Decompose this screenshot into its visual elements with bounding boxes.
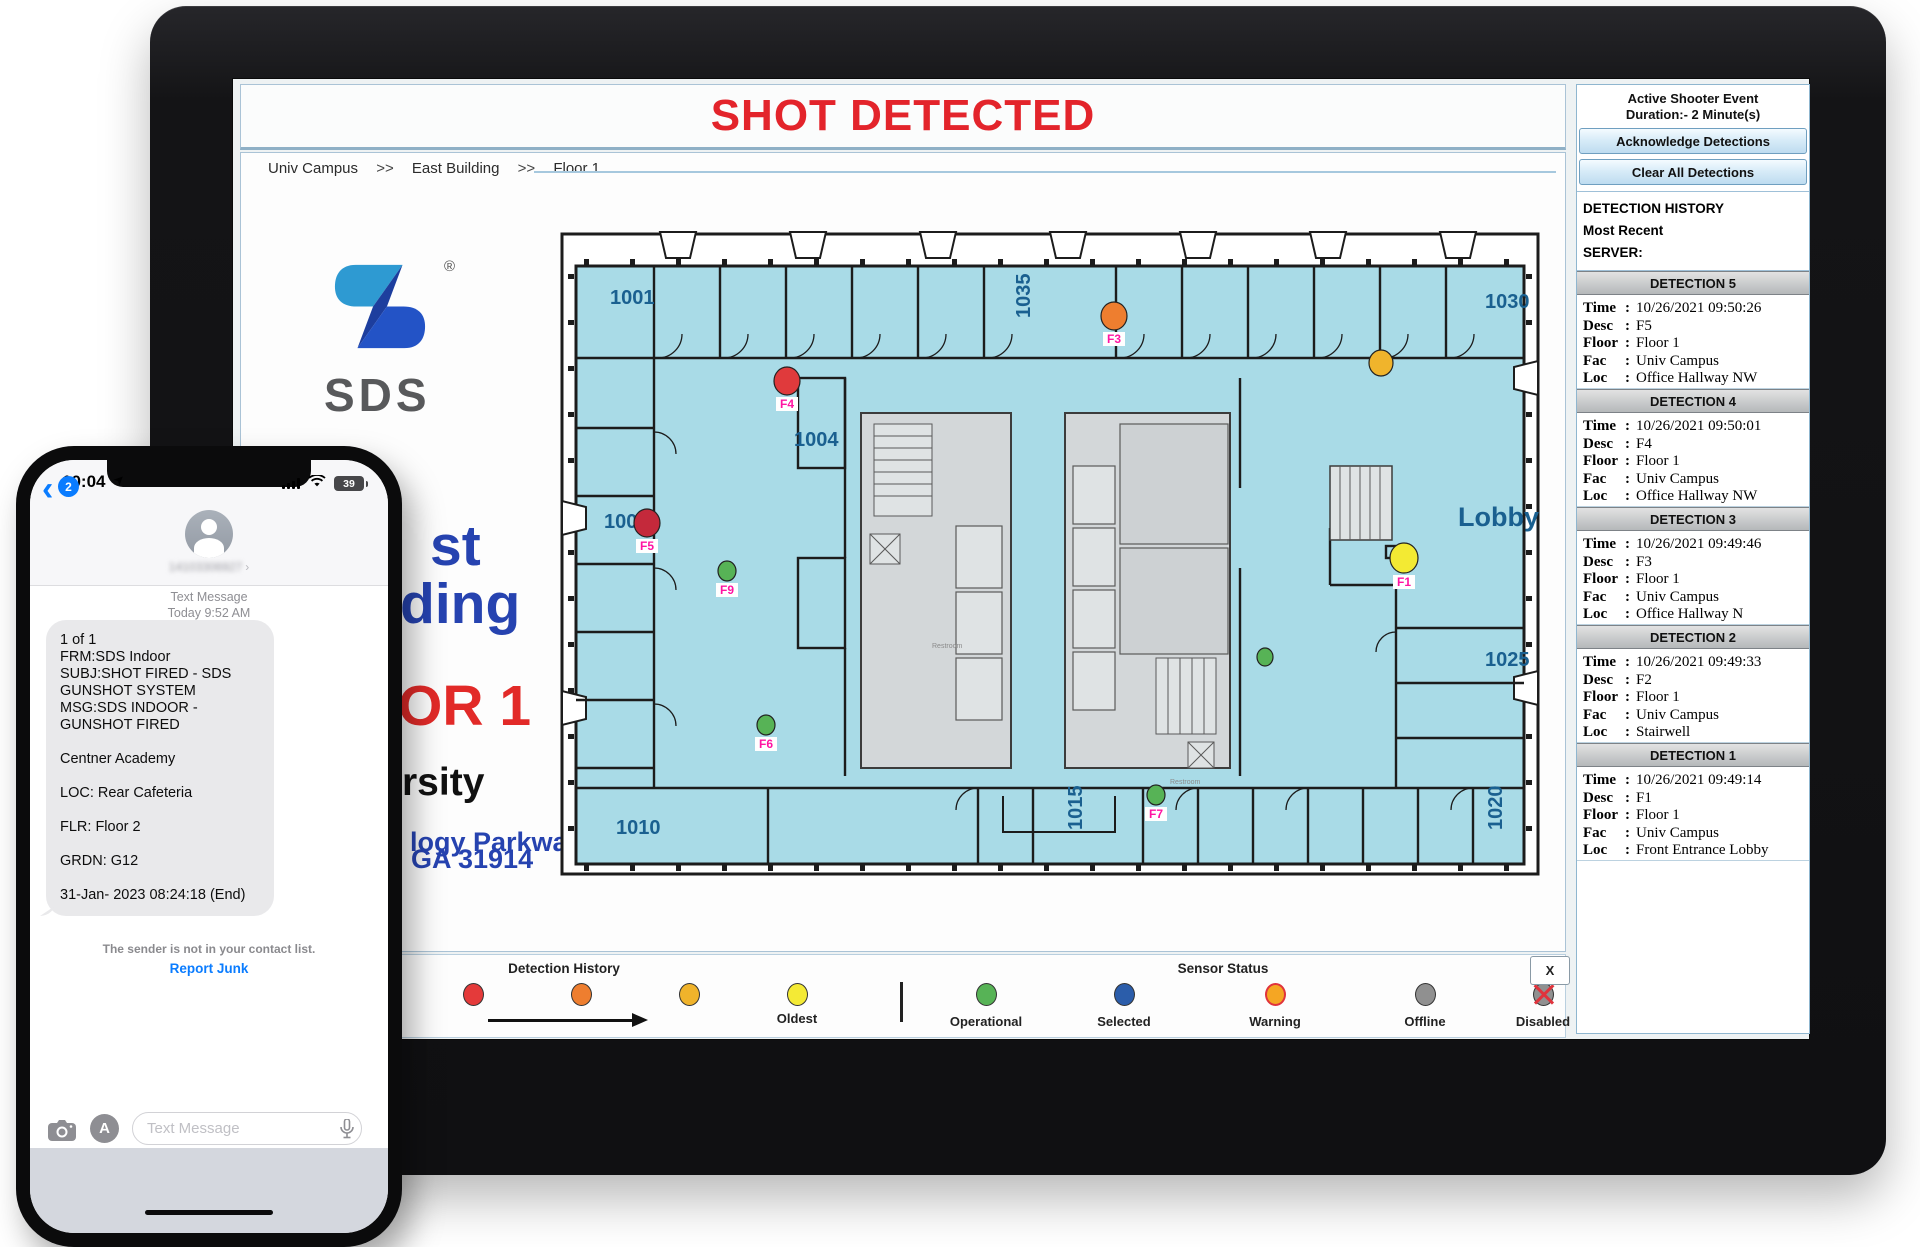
sensor-status-label: Offline bbox=[1404, 1014, 1445, 1029]
room-label: 1010 bbox=[616, 817, 661, 839]
detection-marker-sensor-amber[interactable] bbox=[1369, 350, 1393, 376]
unread-badge: 2 bbox=[58, 476, 79, 497]
breadcrumb-separator: >> bbox=[518, 160, 536, 177]
message-date-label: Today 9:52 AM bbox=[30, 606, 388, 620]
room-label: 1001 bbox=[610, 287, 655, 309]
legend-close-button[interactable]: X bbox=[1530, 956, 1570, 985]
detection-entry-details: Time:10/26/2021 09:50:01Desc:F4Floor:Flo… bbox=[1577, 413, 1809, 507]
svg-text:F3: F3 bbox=[1107, 332, 1121, 346]
legend-strip bbox=[240, 954, 1566, 1038]
app-store-icon[interactable]: A bbox=[90, 1114, 119, 1143]
chevron-right-icon: › bbox=[245, 560, 249, 574]
sms-message-bubble: 1 of 1FRM:SDS IndoorSUBJ:SHOT FIRED - SD… bbox=[46, 620, 274, 916]
detection-entry-details: Time:10/26/2021 09:50:26Desc:F5Floor:Flo… bbox=[1577, 295, 1809, 389]
floor-text-fragment: OR 1 bbox=[398, 678, 531, 735]
history-title: DETECTION HISTORY bbox=[1583, 198, 1809, 220]
sms-line: GUNSHOT SYSTEM bbox=[60, 683, 260, 700]
sensor-status-label: Operational bbox=[950, 1014, 1022, 1029]
detection-entry-header[interactable]: DETECTION 1 bbox=[1577, 743, 1809, 767]
history-dot bbox=[571, 983, 592, 1006]
detection-entry-header[interactable]: DETECTION 2 bbox=[1577, 625, 1809, 649]
sms-line: FRM:SDS Indoor bbox=[60, 649, 260, 666]
building-text-fragment: ding bbox=[400, 576, 520, 633]
detection-marker-F3[interactable]: F3 bbox=[1101, 302, 1127, 346]
junk-notice: The sender is not in your contact list. bbox=[30, 942, 388, 956]
sds-logo-icon bbox=[328, 256, 432, 364]
history-arrow-icon bbox=[488, 1019, 634, 1022]
detection-entry-details: Time:10/26/2021 09:49:14Desc:F1Floor:Flo… bbox=[1577, 767, 1809, 861]
sms-line: MSG:SDS INDOOR - bbox=[60, 700, 260, 717]
sms-line bbox=[60, 870, 260, 887]
breadcrumb-item-campus[interactable]: Univ Campus bbox=[268, 160, 358, 177]
svg-text:F6: F6 bbox=[759, 737, 773, 751]
sensor-legend-title: Sensor Status bbox=[1178, 961, 1269, 976]
detection-sidebar: Active Shooter Event Duration:- 2 Minute… bbox=[1576, 84, 1810, 1034]
server-label: SERVER: bbox=[1583, 242, 1809, 264]
breadcrumb-separator: >> bbox=[376, 160, 394, 177]
sensor-status-label: Selected bbox=[1097, 1014, 1150, 1029]
sms-line bbox=[60, 734, 260, 751]
room-label: 1020 bbox=[1485, 786, 1507, 831]
address-text-fragment: , GA 31914 bbox=[396, 846, 533, 873]
detection-entry-details: Time:10/26/2021 09:49:46Desc:F3Floor:Flo… bbox=[1577, 531, 1809, 625]
breadcrumb-rule bbox=[534, 171, 1556, 173]
history-dot bbox=[463, 983, 484, 1006]
monitor-screen: SHOT DETECTED Univ Campus >> East Buildi… bbox=[232, 78, 1810, 1040]
svg-text:F7: F7 bbox=[1149, 807, 1163, 821]
sensor-status-dot-operational bbox=[976, 983, 997, 1006]
home-indicator[interactable] bbox=[145, 1210, 273, 1215]
phone-screen: 10:04 ➤ 39 ‹ 2 14103306927› Text Message… bbox=[30, 460, 388, 1233]
detection-entry-header[interactable]: DETECTION 5 bbox=[1577, 271, 1809, 295]
sensor-status-dot-offline bbox=[1415, 983, 1436, 1006]
svg-text:F5: F5 bbox=[640, 539, 654, 553]
camera-icon[interactable] bbox=[48, 1120, 76, 1146]
detection-entry-header[interactable]: DETECTION 4 bbox=[1577, 389, 1809, 413]
sms-line: 31-Jan- 2023 08:24:18 (End) bbox=[60, 887, 260, 904]
floorplan-map[interactable]: 100110351030100410051025101010151020Lobb… bbox=[558, 228, 1542, 880]
phone-bottom-band bbox=[30, 1148, 388, 1233]
svg-text:F4: F4 bbox=[780, 397, 794, 411]
detection-marker-sensor-green[interactable] bbox=[1257, 648, 1273, 666]
sms-line: 1 of 1 bbox=[60, 632, 260, 649]
active-shooter-title: Active Shooter Event Duration:- 2 Minute… bbox=[1577, 85, 1809, 123]
svg-text:F9: F9 bbox=[720, 583, 734, 597]
history-subtitle: Most Recent bbox=[1583, 220, 1809, 242]
room-label: Restroom bbox=[1170, 779, 1201, 786]
room-label: Restroom bbox=[932, 643, 963, 650]
sms-line: FLR: Floor 2 bbox=[60, 819, 260, 836]
message-service-label: Text Message bbox=[30, 590, 388, 604]
sms-line: GRDN: G12 bbox=[60, 853, 260, 870]
contact-avatar[interactable] bbox=[185, 510, 233, 558]
detection-marker-F5[interactable]: F5 bbox=[634, 509, 660, 553]
university-text-fragment: rsity bbox=[402, 763, 484, 802]
clear-all-detections-button[interactable]: Clear All Detections bbox=[1579, 159, 1807, 185]
sensor-status-dot-warning bbox=[1265, 983, 1286, 1006]
room-label: 1030 bbox=[1485, 291, 1530, 313]
breadcrumb-item-floor[interactable]: Floor 1 bbox=[553, 160, 600, 177]
history-legend-title: Detection History bbox=[508, 961, 620, 976]
history-header-panel: DETECTION HISTORY Most Recent SERVER: bbox=[1577, 191, 1809, 271]
detection-list: DETECTION 5Time:10/26/2021 09:50:26Desc:… bbox=[1577, 271, 1809, 861]
sms-line: Centner Academy bbox=[60, 751, 260, 768]
svg-text:F1: F1 bbox=[1397, 575, 1411, 589]
room-label: Lobby bbox=[1458, 502, 1539, 532]
sms-line bbox=[60, 836, 260, 853]
sensor-status-dot-disabled bbox=[1533, 983, 1554, 1006]
building-text-fragment: st bbox=[430, 518, 481, 575]
phone-notch bbox=[107, 460, 311, 487]
event-title: Active Shooter Event bbox=[1577, 91, 1809, 107]
sms-line: GUNSHOT FIRED bbox=[60, 717, 260, 734]
registered-mark: ® bbox=[444, 258, 455, 275]
room-label: 1015 bbox=[1065, 786, 1087, 831]
breadcrumb: Univ Campus >> East Building >> Floor 1 bbox=[268, 160, 614, 177]
detection-marker-F4[interactable]: F4 bbox=[774, 367, 800, 411]
sensor-status-label: Warning bbox=[1249, 1014, 1301, 1029]
detection-entry-header[interactable]: DETECTION 3 bbox=[1577, 507, 1809, 531]
sds-logo-text: SDS bbox=[324, 368, 431, 422]
history-dot bbox=[787, 983, 808, 1006]
oldest-label: Oldest bbox=[777, 1011, 817, 1026]
sensor-status-label: Disabled bbox=[1516, 1014, 1570, 1029]
sensor-status-dot-selected bbox=[1114, 983, 1135, 1006]
alert-banner: SHOT DETECTED bbox=[240, 84, 1566, 150]
legend-divider bbox=[900, 982, 903, 1022]
room-label: 1004 bbox=[794, 429, 839, 451]
report-junk-link[interactable]: Report Junk bbox=[30, 961, 388, 976]
sms-line: LOC: Rear Cafeteria bbox=[60, 785, 260, 802]
message-input[interactable] bbox=[132, 1112, 362, 1145]
contact-number[interactable]: 14103306927› bbox=[30, 560, 388, 574]
back-chevron-icon[interactable]: ‹ bbox=[42, 474, 53, 504]
breadcrumb-item-building[interactable]: East Building bbox=[412, 160, 500, 177]
detection-entry-details: Time:10/26/2021 09:49:33Desc:F2Floor:Flo… bbox=[1577, 649, 1809, 743]
battery-icon: 39 bbox=[334, 476, 364, 491]
sms-line bbox=[60, 768, 260, 785]
phone-body: 10:04 ➤ 39 ‹ 2 14103306927› Text Message… bbox=[16, 446, 402, 1247]
room-label: 1025 bbox=[1485, 649, 1530, 671]
microphone-icon[interactable] bbox=[340, 1119, 354, 1144]
event-duration: Duration:- 2 Minute(s) bbox=[1577, 107, 1809, 123]
acknowledge-detections-button[interactable]: Acknowledge Detections bbox=[1579, 128, 1807, 154]
alert-banner-text: SHOT DETECTED bbox=[711, 91, 1096, 141]
room-label: 1035 bbox=[1013, 274, 1035, 319]
sms-line bbox=[60, 802, 260, 819]
detection-marker-F1[interactable]: F1 bbox=[1390, 543, 1418, 589]
history-dot bbox=[679, 983, 700, 1006]
sms-line: SUBJ:SHOT FIRED - SDS bbox=[60, 666, 260, 683]
wifi-icon bbox=[308, 475, 326, 491]
cellular-signal-icon bbox=[282, 478, 301, 489]
